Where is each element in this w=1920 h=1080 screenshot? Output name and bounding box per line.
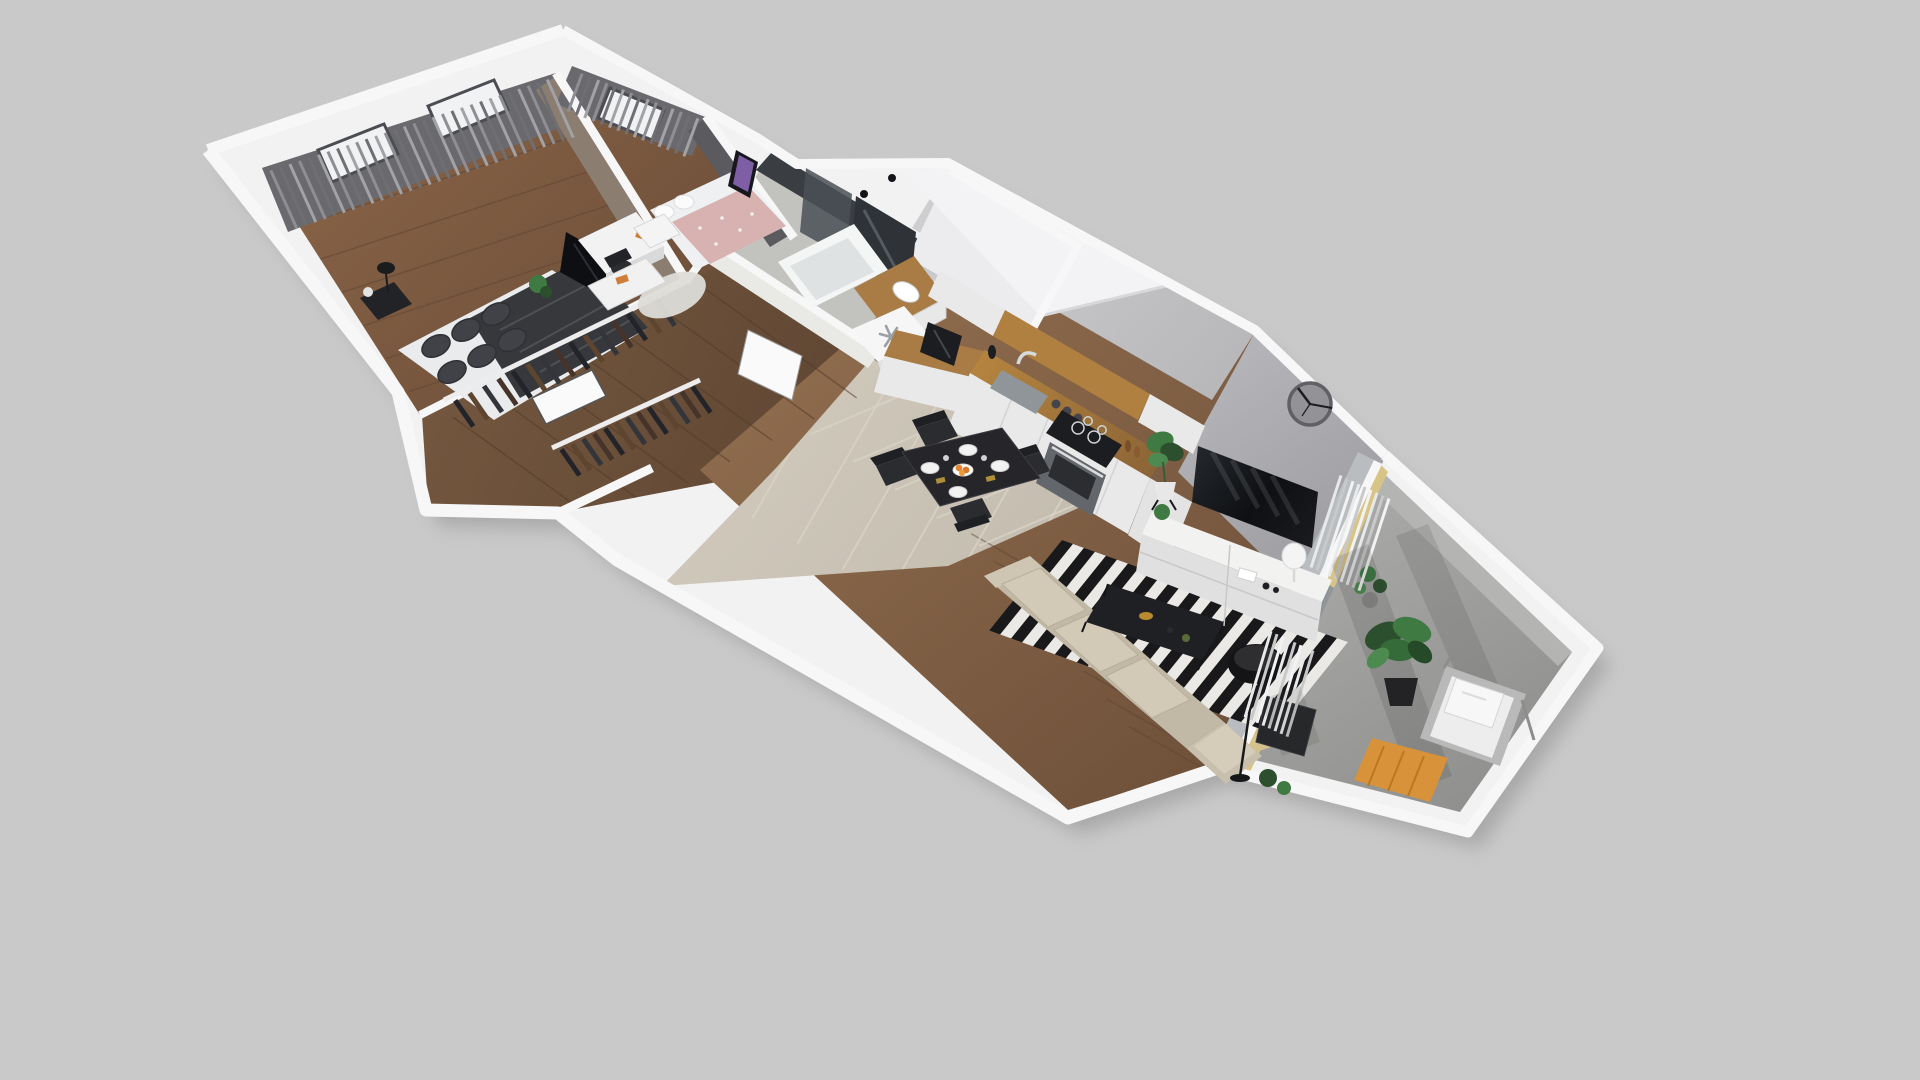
- wall-clock: [1289, 383, 1332, 425]
- glass: [981, 455, 987, 461]
- candle: [1167, 627, 1173, 633]
- black-decor: [1273, 587, 1279, 593]
- bottle: [988, 345, 996, 359]
- scene: [0, 0, 1920, 1080]
- floorplan-render: [0, 0, 1920, 1080]
- glass: [943, 455, 949, 461]
- plate: [949, 487, 967, 498]
- plate: [959, 445, 977, 456]
- sideboard-plant: [1154, 504, 1170, 520]
- plate: [991, 461, 1009, 472]
- wall-lamp: [888, 174, 896, 182]
- plate: [921, 463, 939, 474]
- bedside-lamp: [377, 262, 395, 274]
- decor-ball: [363, 287, 373, 297]
- table-lamp-shade: [1282, 543, 1306, 569]
- bed-pillow: [674, 195, 694, 209]
- wall-lamp: [860, 190, 868, 198]
- green-glass: [1182, 634, 1190, 642]
- floor-lamp-base: [1230, 774, 1250, 782]
- gold-bowl: [1139, 612, 1153, 620]
- orange: [959, 470, 965, 476]
- black-decor: [1263, 583, 1270, 590]
